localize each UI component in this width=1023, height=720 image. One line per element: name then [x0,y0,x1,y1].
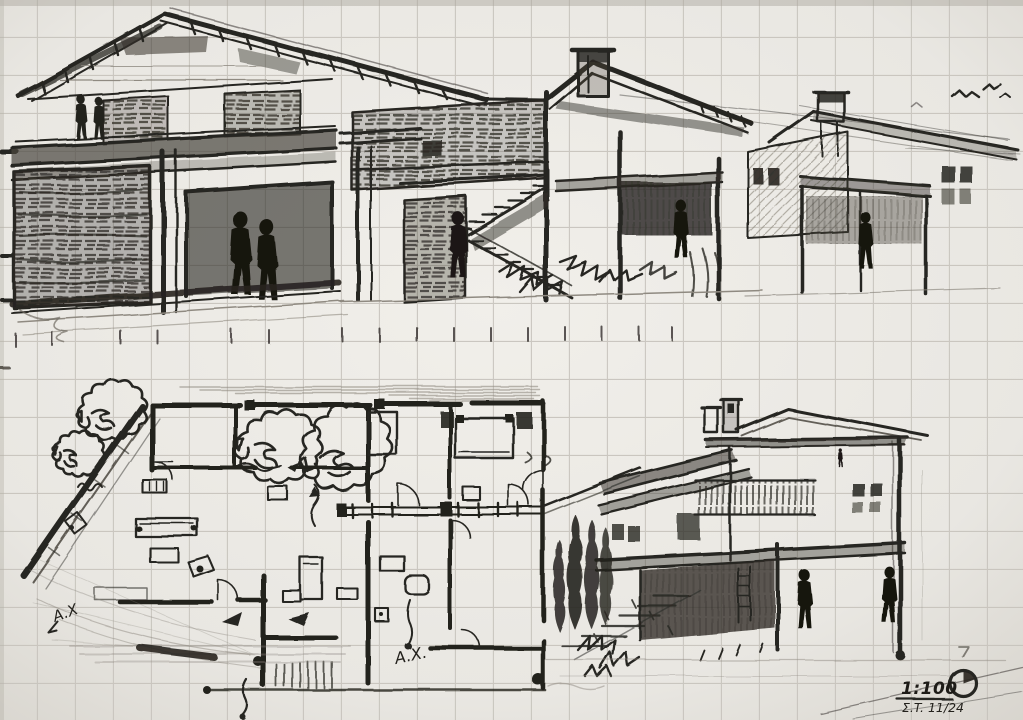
paper-top-edge [0,0,1023,6]
signature: Σ.T. 11/24 [902,700,964,715]
scale-note: 1:100 [901,679,958,699]
sketch-canvas: 1:100 Σ.T. 11/24 A.X A.X. [0,0,1023,720]
paper-left-edge [0,0,4,720]
stone-wall-left [14,166,150,308]
sketch-photo: 1:100 Σ.T. 11/24 A.X A.X. [0,0,1023,720]
